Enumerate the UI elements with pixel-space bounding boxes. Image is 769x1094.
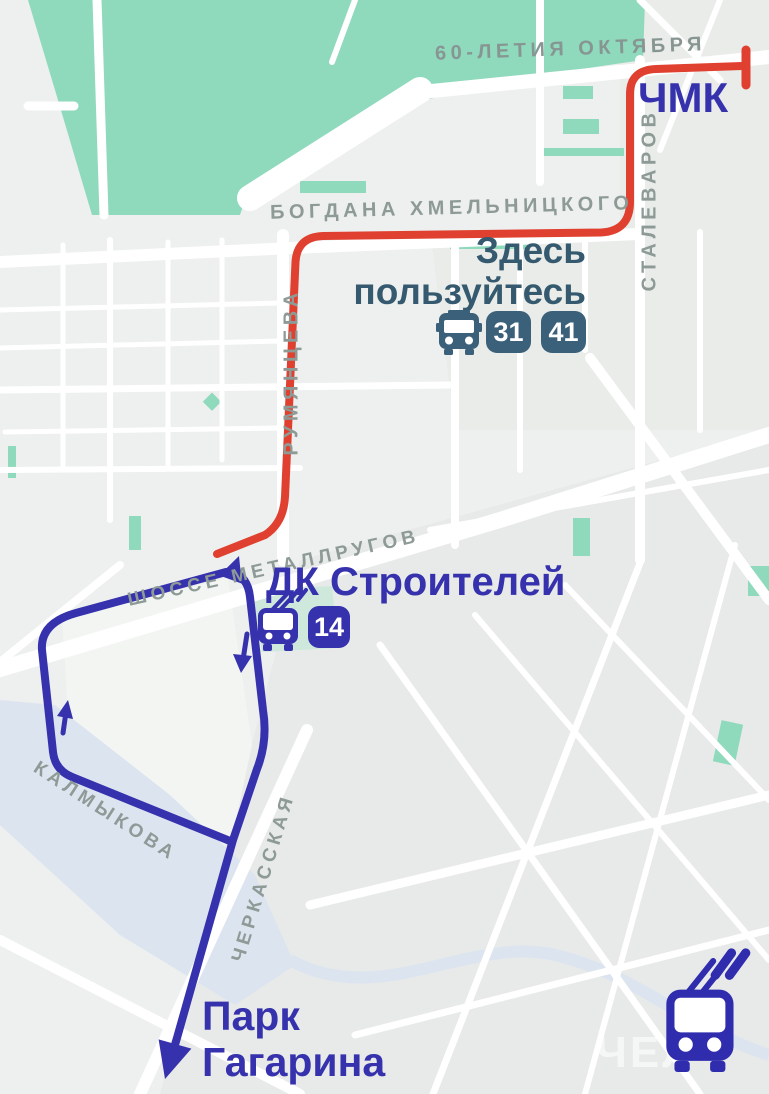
hint-line1: Здесь <box>338 230 586 271</box>
transit-map: 60-ЛЕТИЯ ОКТЯБРЯ СТАЛЕВАРОВ БОГДАНА ХМЕЛ… <box>0 0 769 1094</box>
park-label-line1: Парк <box>202 993 385 1039</box>
trolleybus-icon <box>248 588 308 652</box>
route-badge-41: 41 <box>541 311 586 353</box>
bus-icon <box>436 310 482 356</box>
route-badge-14: 14 <box>308 606 350 648</box>
hint-line2: пользуйтесь <box>338 271 586 312</box>
stop-label-dk-stroiteley: ДК Строителей <box>266 560 566 605</box>
street-label-rumyantseva: РУМЯНЦЕВА <box>281 288 304 455</box>
park-label-line2: Гагарина <box>202 1039 385 1085</box>
street-label-stalevarov: СТАЛЕВАРОВ <box>639 109 662 292</box>
trolleybus-logo-icon <box>648 948 760 1078</box>
stop-label-chmk: ЧМК <box>638 74 728 122</box>
hint-text: Здесь пользуйтесь <box>338 230 586 312</box>
route-badge-31: 31 <box>486 311 531 353</box>
stop-label-park-gagarina: Парк Гагарина <box>202 993 385 1085</box>
